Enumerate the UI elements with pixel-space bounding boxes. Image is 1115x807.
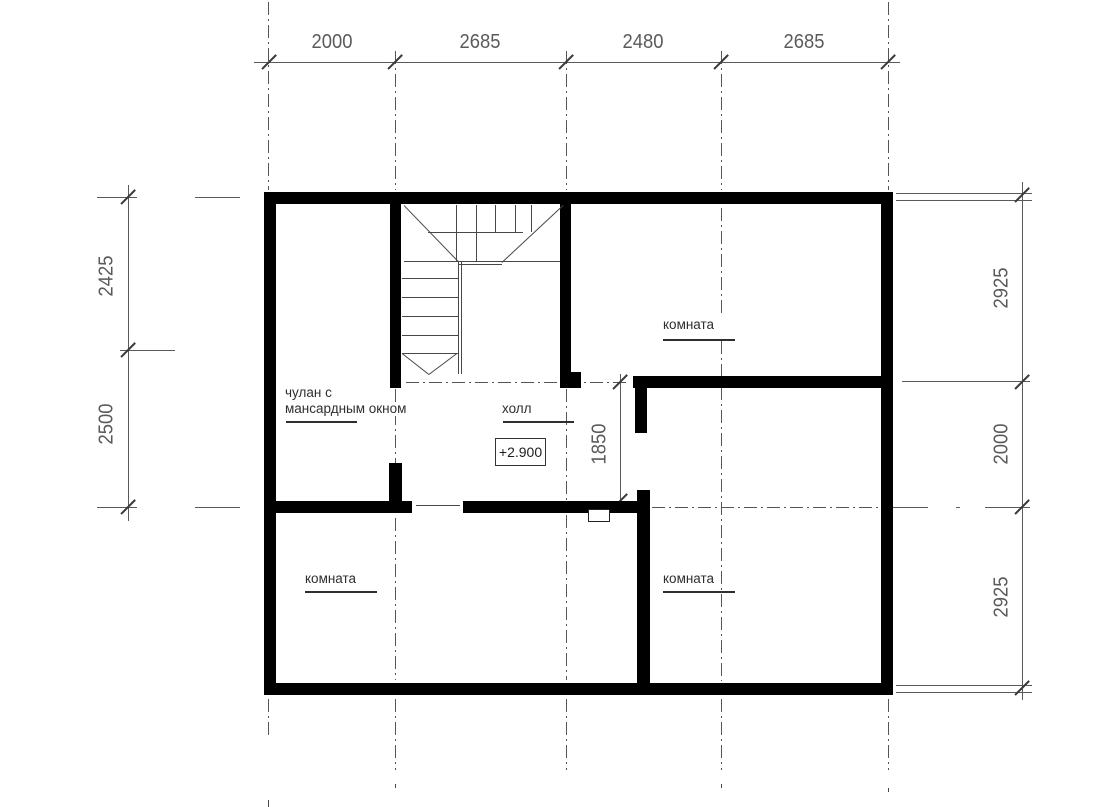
elevation-mark-box: +2.900	[495, 438, 546, 466]
elevation-mark-value: +2.900	[499, 444, 542, 460]
room-bottom-right-underline	[663, 591, 735, 593]
closet-label-underline	[286, 421, 357, 423]
room-bottom-right-label: комната	[663, 572, 714, 586]
room-top-right-label: комната	[663, 318, 714, 332]
closet-label-line1: чулан с	[285, 386, 332, 400]
room-bottom-left-underline	[305, 591, 377, 593]
hall-label: холл	[502, 402, 532, 416]
room-bottom-left-label: комната	[305, 572, 356, 586]
closet-label-line2: мансардным окном	[285, 402, 406, 416]
room-labels: чулан с мансардным окном холл комната ко…	[0, 0, 1115, 807]
room-top-right-underline	[663, 339, 735, 341]
floor-plan-canvas: 2000 2685 2480 2685 2425 2500 2925 2000 …	[0, 0, 1115, 807]
duct-box	[588, 509, 610, 522]
hall-label-underline	[503, 421, 574, 423]
